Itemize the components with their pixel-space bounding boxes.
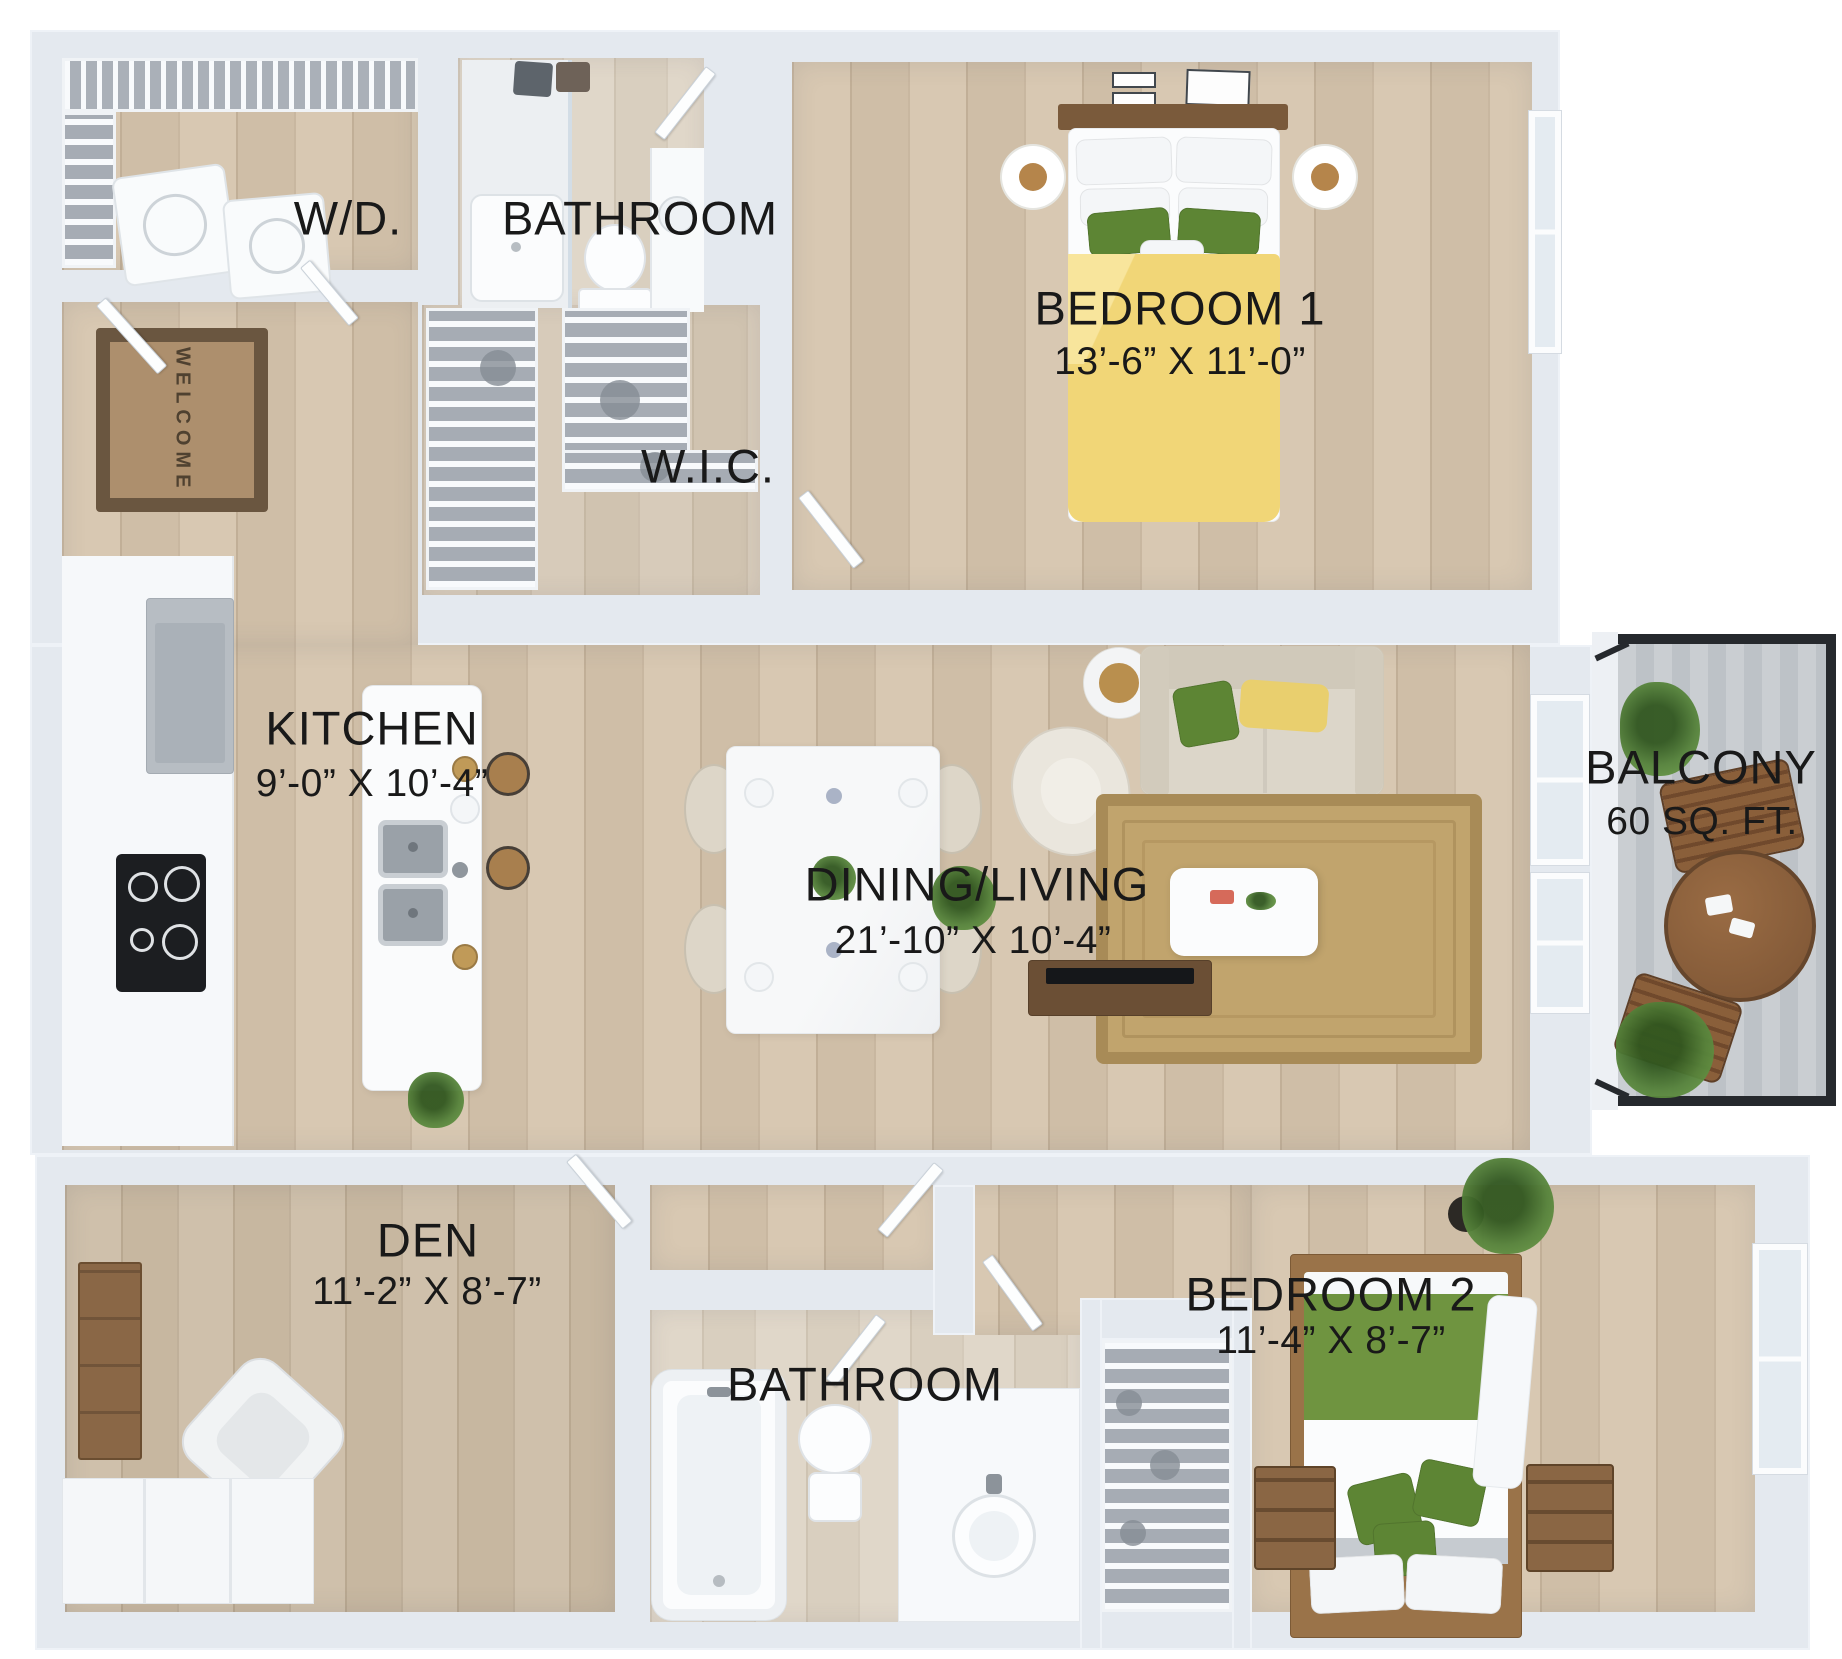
wic-clothes <box>600 380 640 420</box>
den-desk <box>62 1478 314 1604</box>
wd-wire-shelf-left <box>62 112 116 268</box>
bedroom1-dims: 13’-6” X 11’-0” <box>1054 340 1306 384</box>
bed2-pillow <box>1405 1554 1504 1615</box>
hall-floor <box>650 1185 940 1270</box>
table-plate <box>744 962 774 992</box>
dining-living-label: DINING/LIVING <box>805 857 1150 912</box>
table-plate <box>898 778 928 808</box>
tv <box>1046 968 1194 984</box>
sofa-yellow-pillow <box>1238 679 1329 733</box>
sofa-green-pillow <box>1171 679 1241 749</box>
cooktop-burner <box>130 928 154 952</box>
cooktop-burner <box>128 872 158 902</box>
bedroom2-window <box>1752 1243 1808 1475</box>
bathroom-bottom-label: BATHROOM <box>727 1357 1003 1412</box>
wic-clothes <box>480 350 516 386</box>
cooktop-burner <box>164 866 200 902</box>
wall-art <box>1185 69 1250 107</box>
bar-stool <box>486 752 530 796</box>
island-plant <box>408 1072 464 1128</box>
bed1-headboard <box>1058 104 1288 130</box>
kitchen-dims: 9’-0” X 10’-4” <box>256 762 488 806</box>
island-plate <box>452 944 478 970</box>
nightstand-lamp <box>1294 146 1356 208</box>
wall-art <box>1112 72 1156 88</box>
sink-drain <box>408 842 418 852</box>
floor-plan: WELCOME <box>0 0 1842 1659</box>
nightstand-lamp <box>1002 146 1064 208</box>
bed1-pillow <box>1075 136 1173 185</box>
bathroom-bottom-sink <box>952 1494 1036 1578</box>
den-dims: 11’-2” X 8’-7” <box>312 1270 542 1314</box>
wall-closet-left <box>1080 1298 1102 1650</box>
washer <box>111 163 239 288</box>
bedroom2-chest <box>1526 1464 1614 1572</box>
table-plate <box>898 962 928 992</box>
table-plate <box>744 778 774 808</box>
toilet-tank <box>808 1472 862 1522</box>
wd-wire-shelf-top <box>62 58 418 112</box>
welcome-mat: WELCOME <box>96 328 268 512</box>
coffee-table-decor <box>1210 890 1234 904</box>
balcony-frame-bottom <box>1618 1096 1836 1106</box>
towel-rack <box>556 62 590 92</box>
kitchen-label: KITCHEN <box>265 701 478 756</box>
dining-living-dims: 21’-10” X 10’-4” <box>835 919 1112 963</box>
wic-shelf-left <box>426 308 538 590</box>
table-napkin <box>826 788 842 804</box>
wic-label: W.I.C. <box>641 439 775 494</box>
island-faucet <box>452 862 468 878</box>
balcony-label: BALCONY <box>1585 740 1817 795</box>
fridge <box>146 598 234 774</box>
bedroom2-dims: 11’-4” X 8’-7” <box>1216 1319 1446 1363</box>
sink-drain <box>408 908 418 918</box>
living-window-upper <box>1530 694 1590 866</box>
wall-hall-bedroom2 <box>933 1185 975 1335</box>
sink-faucet <box>986 1474 1002 1494</box>
closet-item <box>1120 1520 1146 1546</box>
den-label: DEN <box>377 1213 479 1268</box>
wd-label: W/D. <box>294 191 402 246</box>
balcony-frame-right <box>1826 634 1836 1106</box>
coffee-table <box>1170 868 1318 956</box>
closet-item <box>1150 1450 1180 1480</box>
cooktop-burner <box>162 924 198 960</box>
toilet-bowl <box>798 1404 872 1474</box>
bedroom2-label: BEDROOM 2 <box>1185 1267 1476 1322</box>
bedroom2-chest <box>1254 1466 1336 1570</box>
balcony-plant-bottom <box>1616 1002 1714 1098</box>
living-window-lower <box>1530 872 1590 1014</box>
towel-rack <box>513 61 553 98</box>
bedroom1-label: BEDROOM 1 <box>1034 281 1325 336</box>
bedroom1-window <box>1528 110 1562 354</box>
welcome-mat-text: WELCOME <box>171 347 194 493</box>
bedroom2-plant <box>1462 1158 1554 1254</box>
balcony-frame-top <box>1618 634 1836 644</box>
den-cabinet <box>78 1262 142 1460</box>
bathroom-top-label: BATHROOM <box>502 191 778 246</box>
bar-stool <box>486 846 530 890</box>
balcony-dims: 60 SQ. FT. <box>1606 800 1797 844</box>
closet-item <box>1116 1390 1142 1416</box>
coffee-table-sprig <box>1246 892 1276 910</box>
balcony-outer-wall <box>1592 632 1618 1110</box>
bed1-pillow <box>1175 136 1273 185</box>
